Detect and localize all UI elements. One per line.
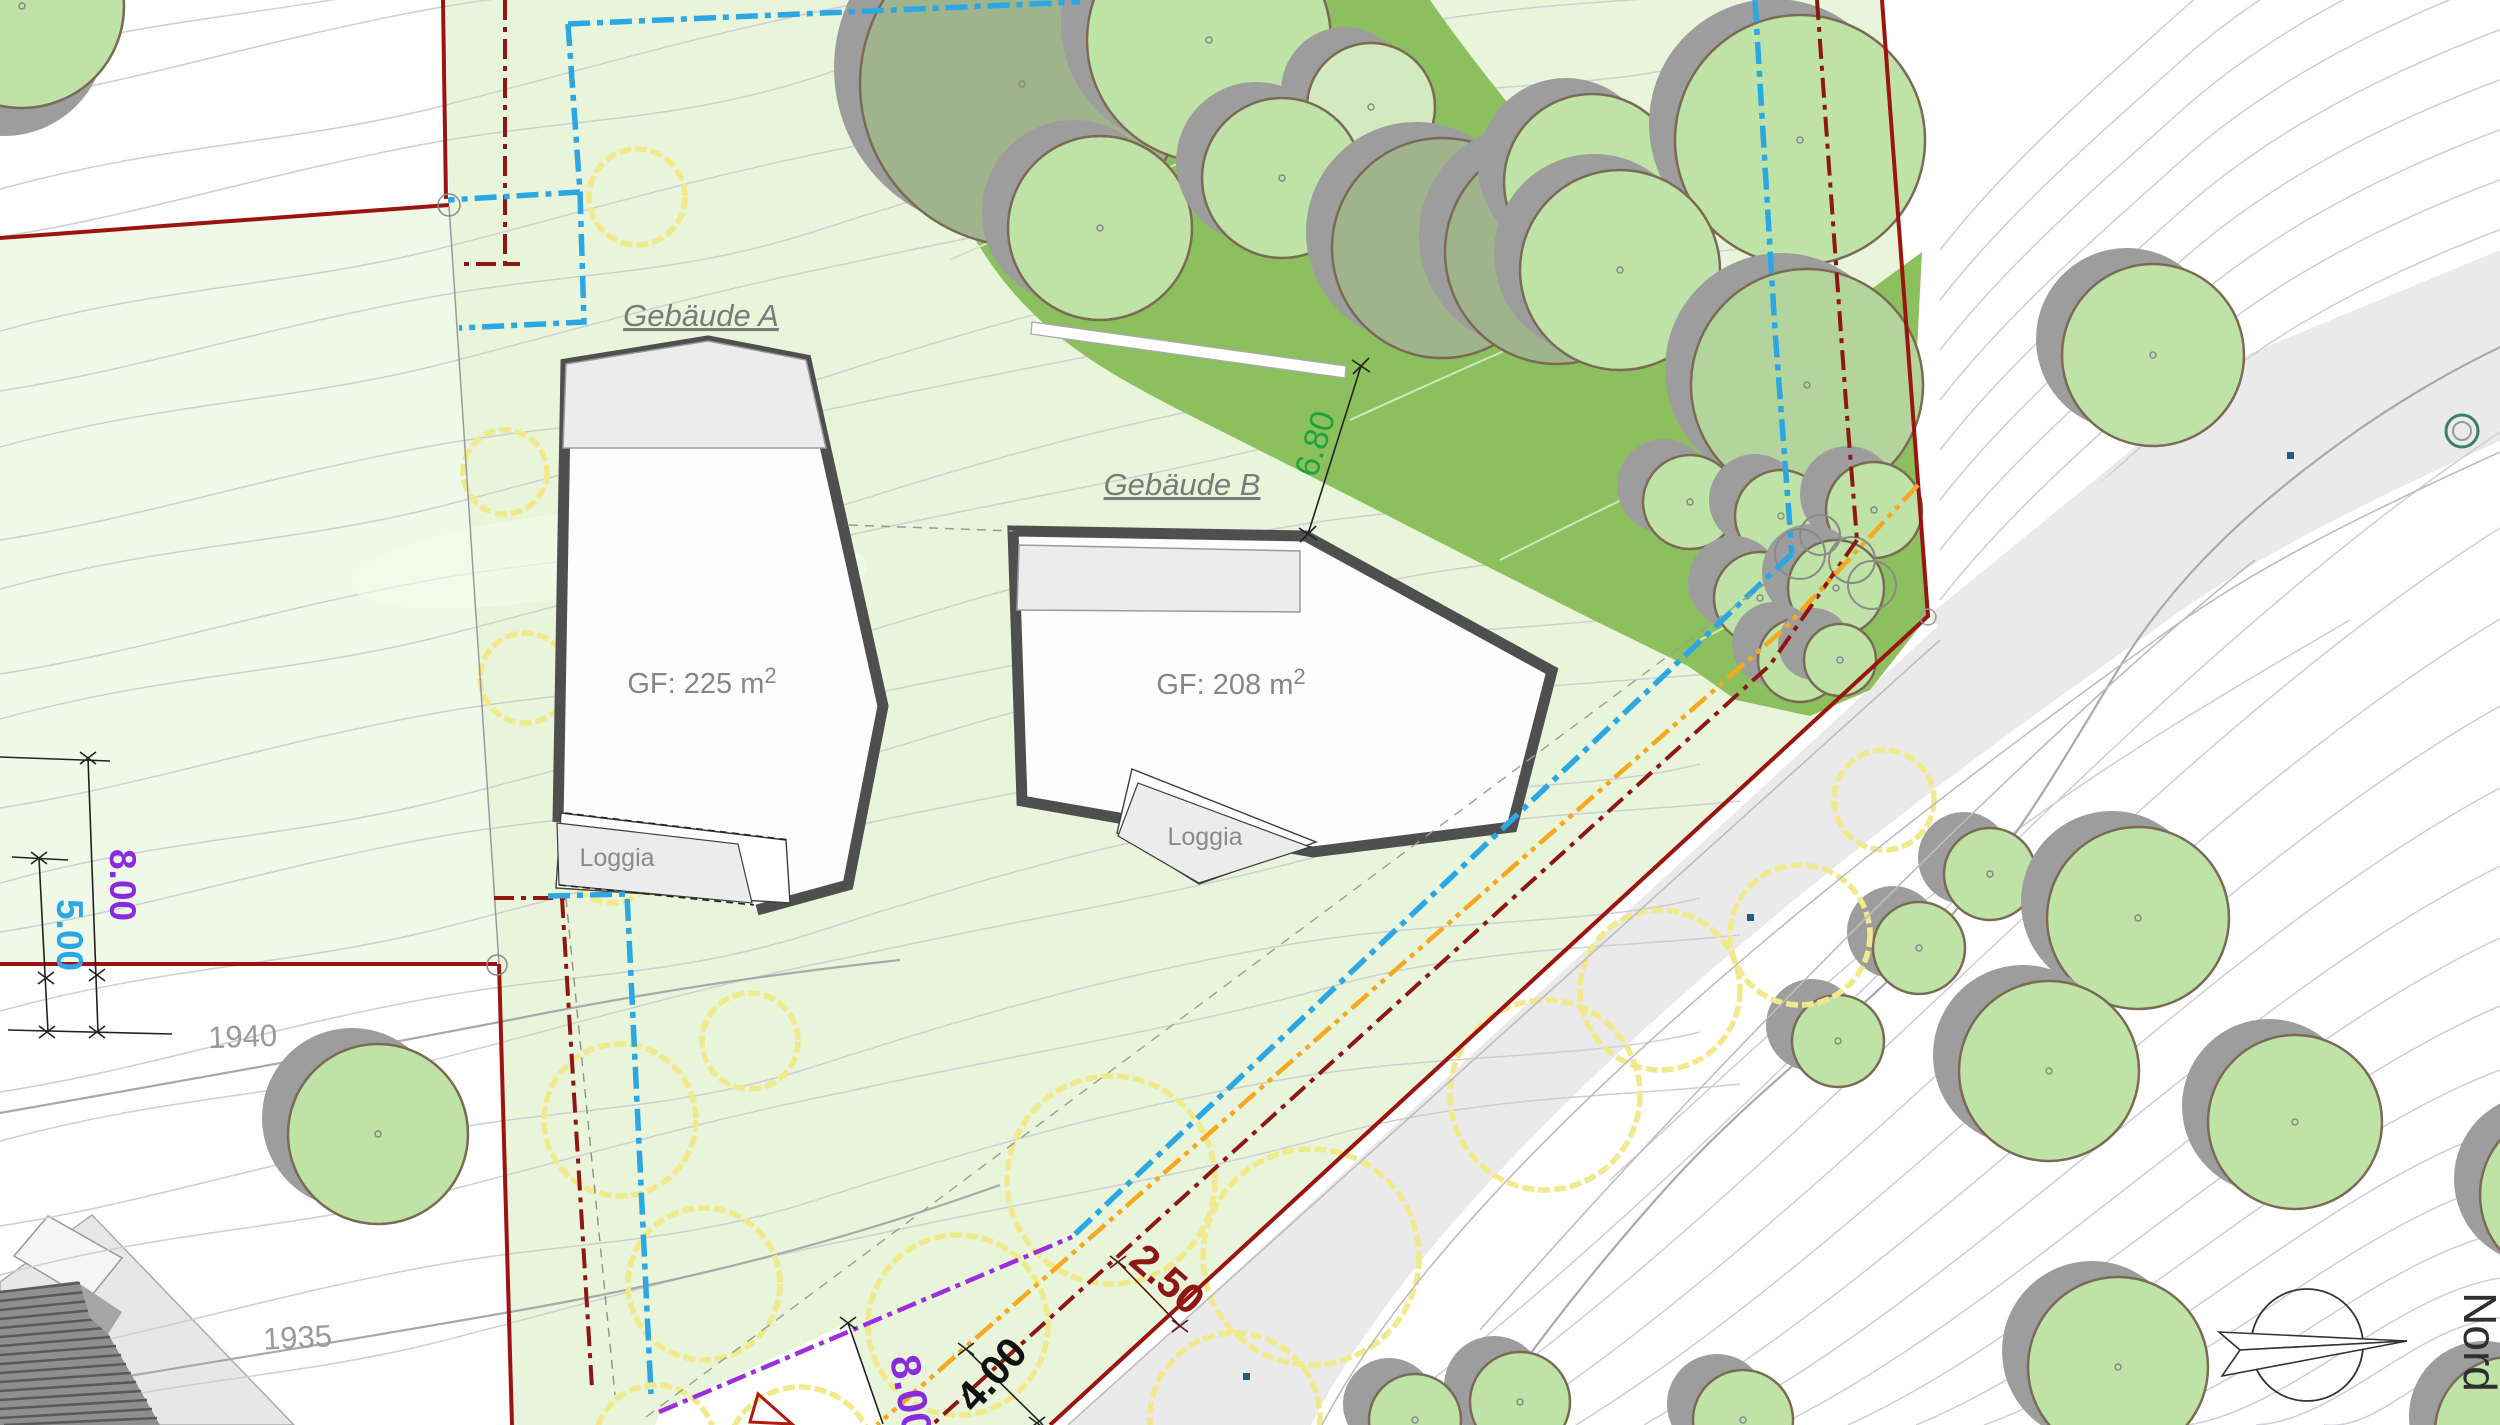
svg-text:1935: 1935 — [262, 1318, 333, 1357]
svg-text:Gebäude A: Gebäude A — [623, 298, 779, 333]
svg-text:Loggia: Loggia — [579, 844, 654, 872]
svg-text:GF: 208 m2: GF: 208 m2 — [1156, 664, 1305, 701]
svg-text:5.00: 5.00 — [49, 899, 90, 971]
svg-text:Nord: Nord — [2454, 1292, 2500, 1392]
svg-text:Gebäude B: Gebäude B — [1104, 467, 1261, 502]
svg-text:8.00: 8.00 — [102, 849, 143, 921]
svg-text:GF: 225 m2: GF: 225 m2 — [627, 663, 776, 700]
svg-text:Loggia: Loggia — [1167, 823, 1242, 851]
svg-text:1940: 1940 — [208, 1018, 278, 1055]
